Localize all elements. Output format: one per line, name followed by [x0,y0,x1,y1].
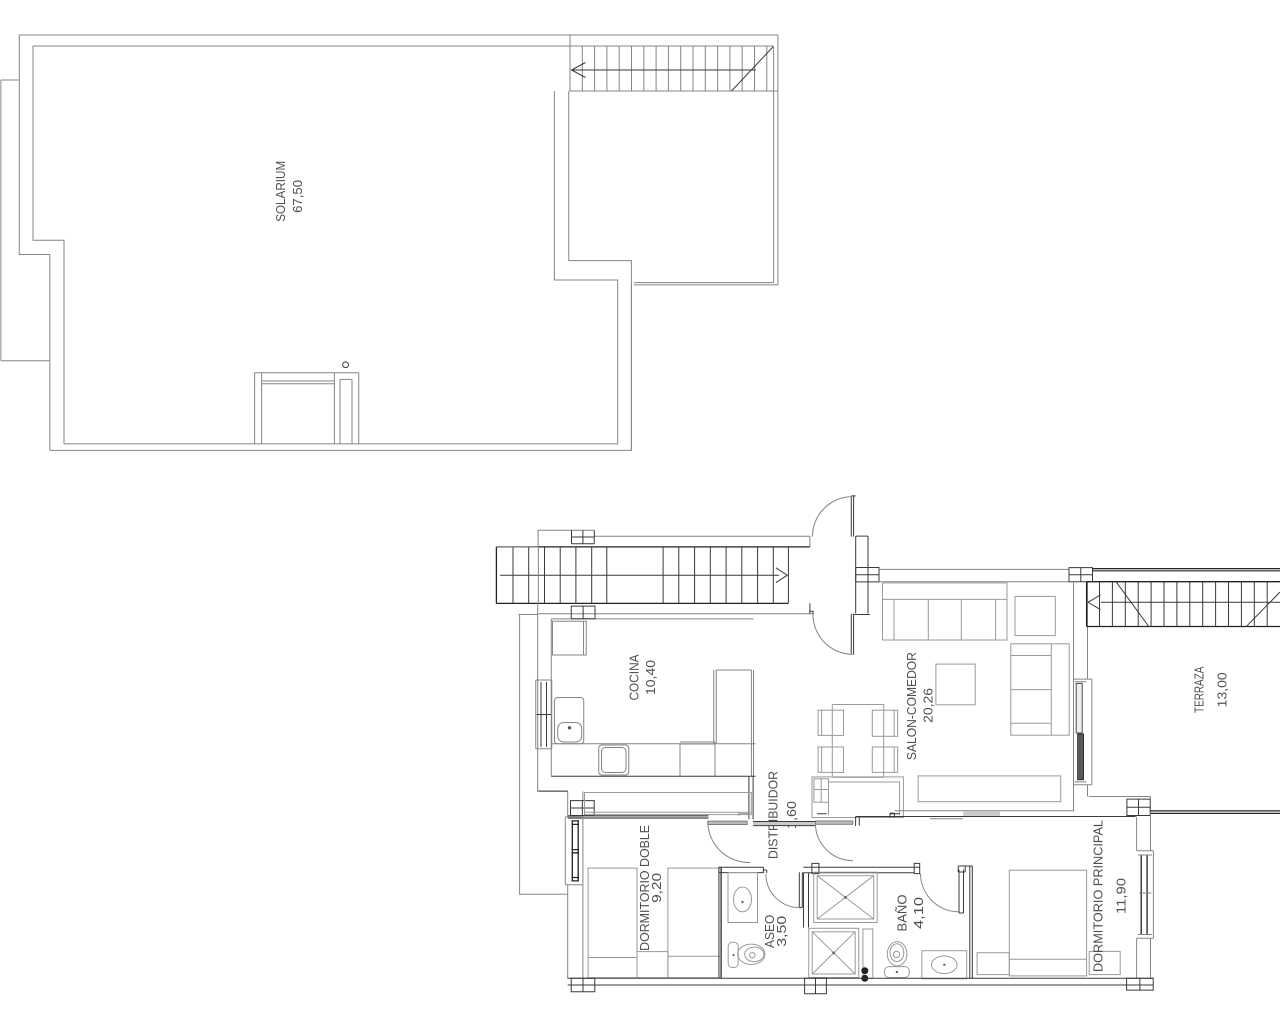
svg-text:TERRAZA: TERRAZA [1192,666,1207,713]
svg-text:DISTRIBUIDOR: DISTRIBUIDOR [766,771,781,859]
svg-text:20,26: 20,26 [921,688,936,723]
svg-text:SOLARIUM: SOLARIUM [273,161,288,222]
svg-text:SALON-COMEDOR: SALON-COMEDOR [904,652,919,760]
svg-text:10,40: 10,40 [643,660,658,695]
svg-text:COCINA: COCINA [627,654,642,700]
svg-text:67,50: 67,50 [290,180,305,213]
svg-text:BAÑO: BAÑO [894,895,909,932]
svg-text:4,10: 4,10 [911,897,926,929]
svg-text:3,50: 3,50 [774,916,789,947]
svg-text:9,20: 9,20 [649,873,664,903]
svg-text:DORMITORIO PRINCIPAL: DORMITORIO PRINCIPAL [1091,820,1106,972]
svg-text:11,90: 11,90 [1113,878,1128,914]
svg-text:13,00: 13,00 [1215,672,1230,707]
